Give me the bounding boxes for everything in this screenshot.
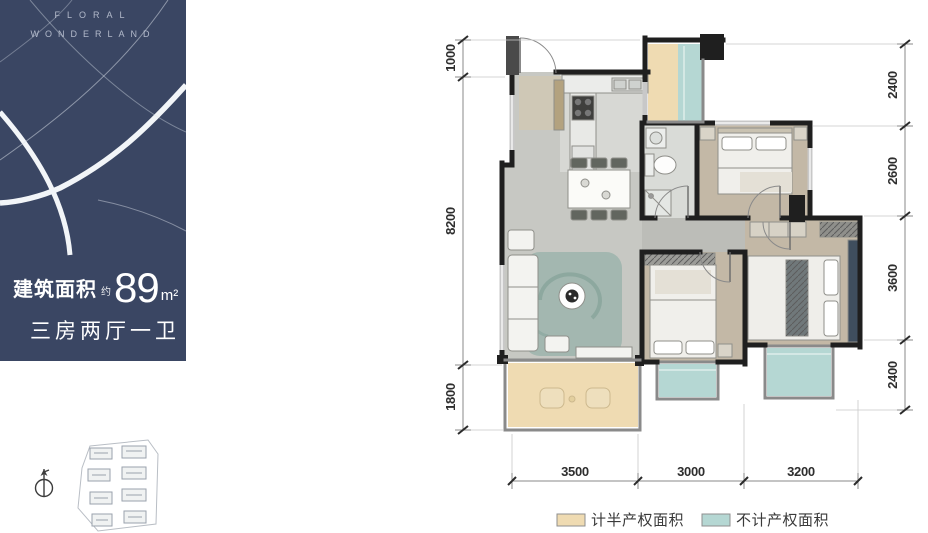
dim-label: 3600 (885, 264, 900, 292)
sofa (508, 255, 538, 351)
site-buildings (88, 446, 146, 526)
corner-pillar (700, 34, 724, 60)
dining-table (568, 170, 630, 208)
site-plan (28, 436, 168, 533)
dining-chair (571, 158, 587, 168)
dimension-bottom: 3500 3000 3200 (508, 464, 862, 489)
tv-console (848, 240, 859, 342)
dining-chair (591, 158, 607, 168)
nightstand (718, 344, 732, 357)
bay-window-2-non-property (767, 348, 831, 396)
dining-chair (571, 210, 587, 220)
nightstand (700, 127, 715, 140)
legend-item-non-property: 不计产权面积 (701, 509, 829, 530)
balcony-half-property (508, 363, 638, 427)
north-arrow-icon (36, 469, 53, 497)
legend: 计半产权面积 不计产权面积 (556, 509, 829, 530)
dining-set (568, 158, 630, 220)
dim-label: 2400 (885, 71, 900, 99)
entry-door-icon (520, 38, 556, 73)
dim-label: 3000 (677, 464, 705, 479)
dimension-left: 1000 8200 1800 (443, 36, 471, 434)
dim-label: 1800 (443, 383, 458, 411)
dim-label: 2600 (885, 157, 900, 185)
legend-label: 不计产权面积 (736, 509, 829, 530)
corner-pillar (789, 195, 805, 222)
armchair (508, 230, 534, 250)
toilet-icon (654, 156, 676, 174)
area-label: 建筑面积 (13, 280, 97, 306)
dining-chair (611, 210, 627, 220)
area-unit: m² (159, 287, 179, 306)
legend-item-half-property: 计半产权面积 (556, 509, 684, 530)
dining-chair (591, 210, 607, 220)
floor-plan: 1000 8200 1800 2400 2600 3600 2400 (430, 22, 928, 500)
stove (572, 96, 594, 120)
half-property-swatch (556, 513, 586, 527)
dim-label: 3500 (561, 464, 589, 479)
toilet-tank (645, 154, 654, 176)
top-bay-non-property (678, 44, 703, 122)
equipment-platform-half-property (648, 44, 678, 122)
nightstand (794, 127, 807, 140)
brand-line1: FLORAL (0, 10, 186, 20)
corridor-floor (642, 218, 745, 252)
legend-label: 计半产权面积 (591, 509, 684, 530)
dim-label: 3200 (787, 464, 815, 479)
area-approx: 约 (97, 283, 114, 306)
entry-pillar (506, 36, 519, 75)
dresser (750, 222, 806, 237)
dim-label: 2400 (885, 361, 900, 389)
dimension-right: 2400 2600 3600 2400 (885, 40, 913, 414)
dim-label: 8200 (443, 207, 458, 235)
brand-logo: FLORAL WONDERLAND (0, 10, 186, 39)
unit-info: 建筑面积 约 89 m² 三房两厅一卫 (13, 270, 183, 345)
shoe-cabinet (554, 80, 564, 130)
ottoman (545, 336, 569, 352)
area-value: 89 (114, 270, 159, 306)
brand-line2: WONDERLAND (0, 29, 186, 39)
tv-bench (576, 347, 632, 358)
brand-sidebar: FLORAL WONDERLAND 建筑面积 约 89 m² 三房两厅一卫 (0, 0, 186, 361)
bay-window-1-non-property (659, 364, 716, 397)
unit-layout: 三房两厅一卫 (13, 315, 183, 345)
non-property-swatch (701, 513, 731, 527)
dining-chair (611, 158, 627, 168)
floorplan-page: FLORAL WONDERLAND 建筑面积 约 89 m² 三房两厅一卫 (0, 0, 928, 533)
dim-label: 1000 (443, 44, 458, 72)
